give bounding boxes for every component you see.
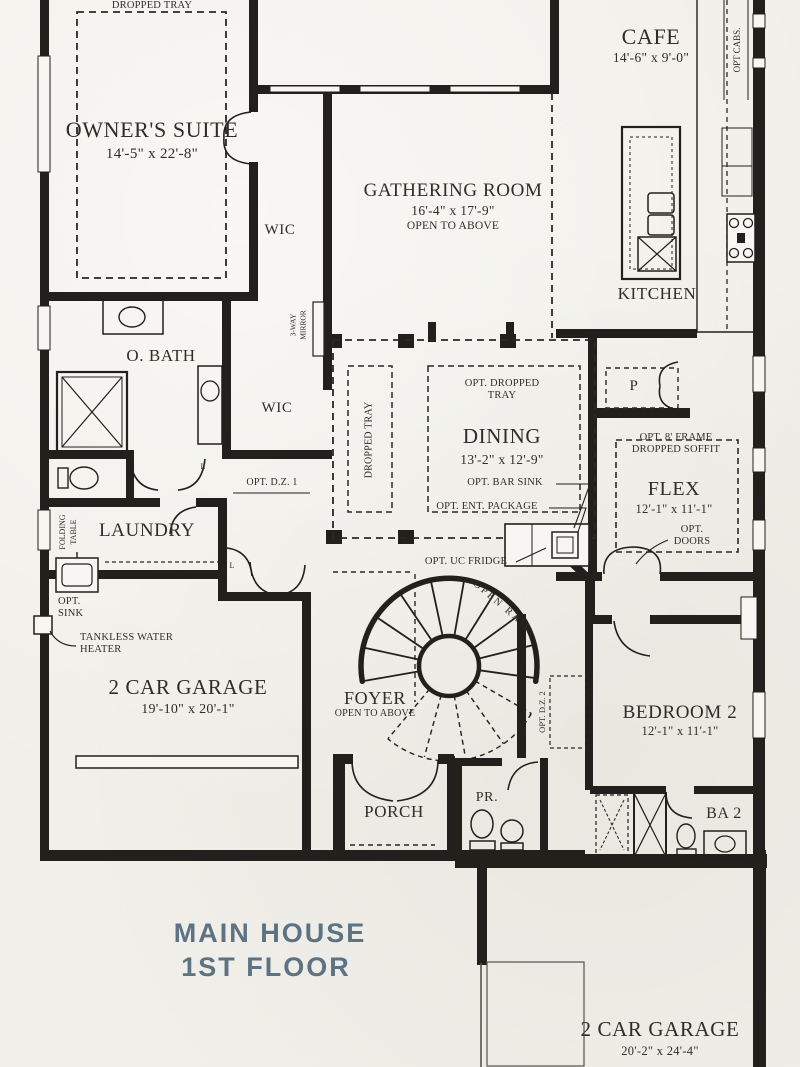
- foyer-note: OPEN TO ABOVE: [335, 708, 416, 719]
- plan-title-line1: MAIN HOUSE: [174, 918, 367, 948]
- ba2-label: BA 2: [706, 805, 742, 823]
- wic-upper-label: WIC: [265, 222, 296, 239]
- linen-2-label: L: [230, 562, 235, 571]
- dining-dims: 13'-2" x 12'-9": [460, 452, 543, 467]
- garage-door-symbol: [76, 756, 298, 768]
- pantry-label: P: [630, 378, 639, 395]
- flex-label: FLEX: [648, 478, 700, 500]
- opt-frame-soffit-label: OPT. 8' FRAME DROPPED SOFFIT: [621, 432, 731, 456]
- owners-suite-dims: 14'-5" x 22'-8": [106, 146, 198, 163]
- wic-lower-label: WIC: [262, 400, 293, 417]
- pr-label: PR.: [476, 790, 498, 806]
- bedroom2-label: BEDROOM 2: [623, 702, 738, 723]
- floor-plan: DROPPED TRAY OWNER'S SUITE 14'-5" x 22'-…: [0, 0, 800, 1067]
- bedroom2-dims: 12'-1" x 11'-1": [641, 724, 718, 738]
- foyer-label: FOYER: [344, 688, 406, 708]
- o-bath-label: O. BATH: [126, 346, 195, 365]
- garage-main-dims: 19'-10" x 20'-1": [141, 702, 235, 718]
- gathering-room-label: GATHERING ROOM: [364, 180, 543, 201]
- opt-doors-label: OPT. DOORS: [666, 524, 718, 548]
- opt-cabs-label: OPT CABS.: [732, 28, 742, 73]
- flex-dims: 12'-1" x 11'-1": [635, 502, 712, 516]
- kitchen-label: KITCHEN: [618, 284, 697, 303]
- bath2-fixtures: [596, 793, 746, 857]
- three-way-mirror-label: 3-WAY MIRROR: [288, 302, 308, 348]
- garage-rear-label: 2 CAR GARAGE: [581, 1018, 740, 1042]
- cafe-label: CAFE: [622, 25, 681, 50]
- tankless-water-heater-label: TANKLESS WATER HEATER: [80, 632, 195, 656]
- porch-label: PORCH: [364, 802, 424, 821]
- opt-sink-label: OPT. SINK: [58, 596, 94, 620]
- opt-uc-fridge-label: OPT. UC FRIDGE: [425, 556, 507, 568]
- opt-dz1-label: OPT. D.Z. 1: [246, 477, 297, 488]
- gathering-room-note: OPEN TO ABOVE: [407, 220, 499, 233]
- rear-garage-lines: [481, 962, 584, 1067]
- cafe-dims: 14'-6" x 9'-0": [613, 50, 689, 65]
- opt-dropped-tray-label: OPT. DROPPED TRAY: [452, 378, 552, 402]
- plan-title-line2: 1ST FLOOR: [181, 952, 351, 982]
- bar-sink-cabinet: [505, 484, 668, 566]
- gathering-room-dims: 16'-4" x 17'-9": [411, 203, 494, 218]
- folding-table-label: FOLDING TABLE: [58, 509, 80, 555]
- opt-bar-sink-label: OPT. BAR SINK: [467, 477, 543, 489]
- dining-label: DINING: [463, 425, 541, 449]
- owners-suite-label: OWNER'S SUITE: [66, 118, 238, 143]
- linen-1-label: L: [201, 463, 206, 472]
- kitchen-counter: [697, 0, 753, 332]
- owners-bath-fixtures: [57, 300, 324, 489]
- garage-rear-dims: 20'-2" x 24'-4": [621, 1044, 699, 1058]
- dropped-tray-vertical-label: DROPPED TRAY: [363, 398, 374, 482]
- opt-ent-package-label: OPT. ENT. PACKAGE: [436, 501, 537, 513]
- laundry-label: LAUNDRY: [99, 520, 195, 541]
- dropped-tray-label: DROPPED TRAY: [112, 0, 192, 12]
- powder-room-fixtures: [470, 810, 523, 850]
- opt-dz2-label: OPT. D.Z. 2: [538, 691, 548, 733]
- garage-main-label: 2 CAR GARAGE: [109, 676, 268, 700]
- range-symbol: [727, 214, 755, 262]
- kitchen-island: [622, 127, 680, 279]
